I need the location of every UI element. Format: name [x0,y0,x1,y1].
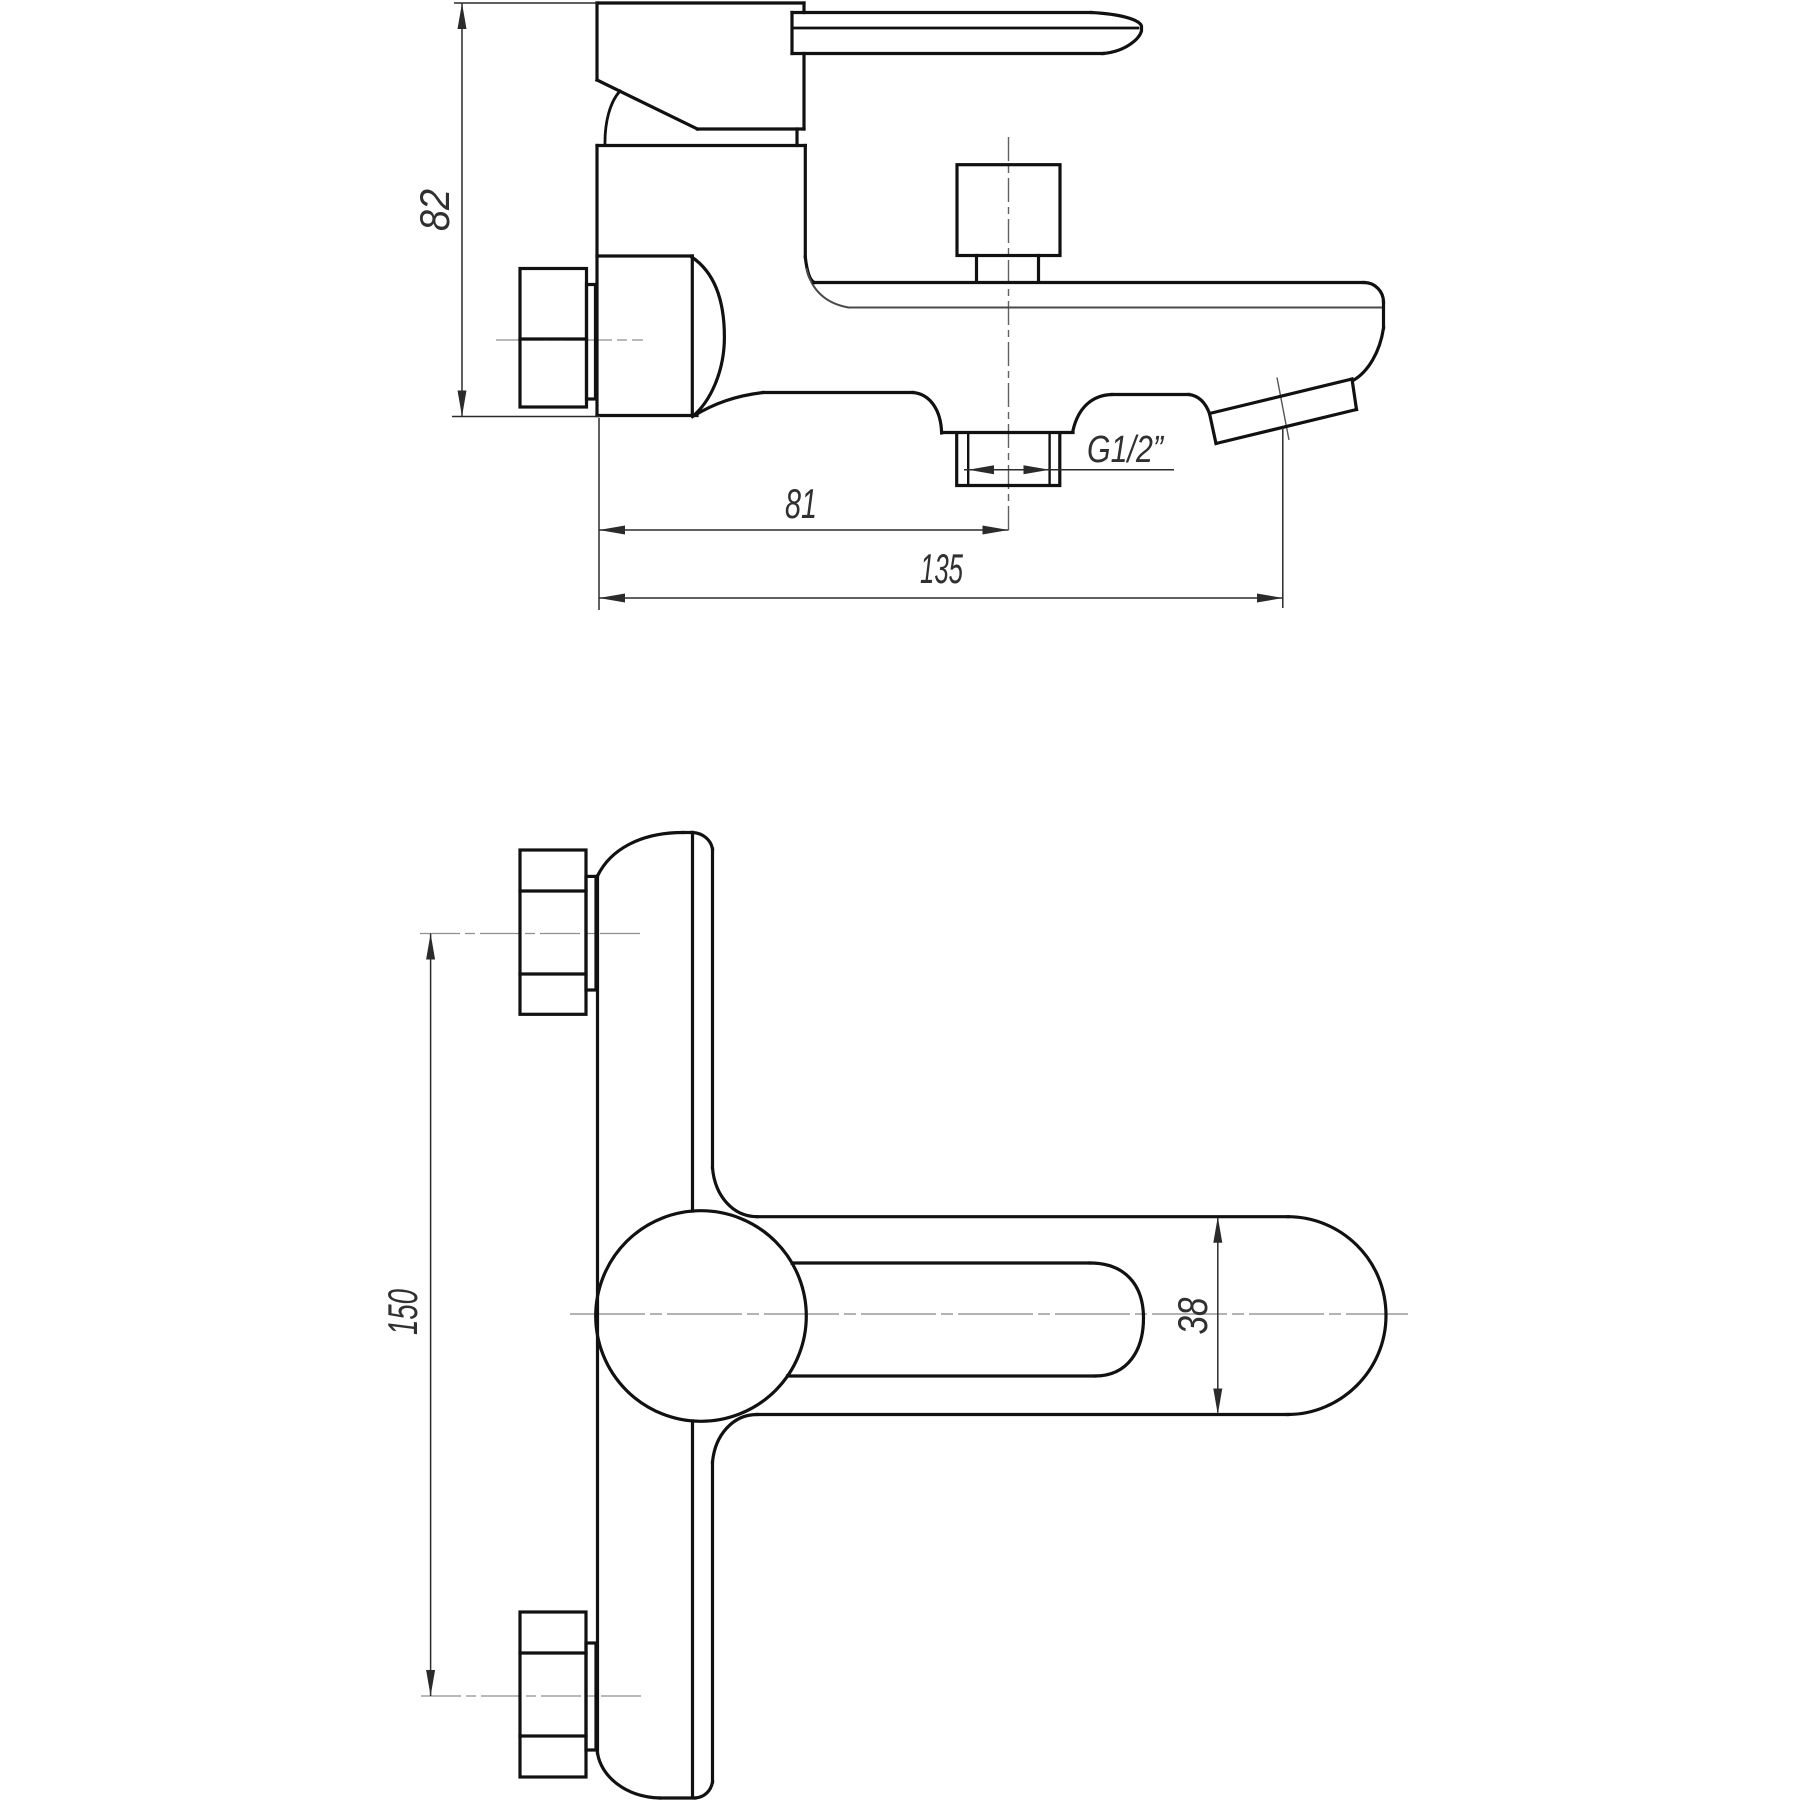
svg-text:81: 81 [785,480,817,527]
svg-text:38: 38 [1169,1297,1216,1335]
svg-text:150: 150 [379,1289,426,1335]
svg-text:G1/2”: G1/2” [1087,429,1165,471]
svg-text:135: 135 [920,545,963,592]
svg-text:82: 82 [411,189,458,231]
